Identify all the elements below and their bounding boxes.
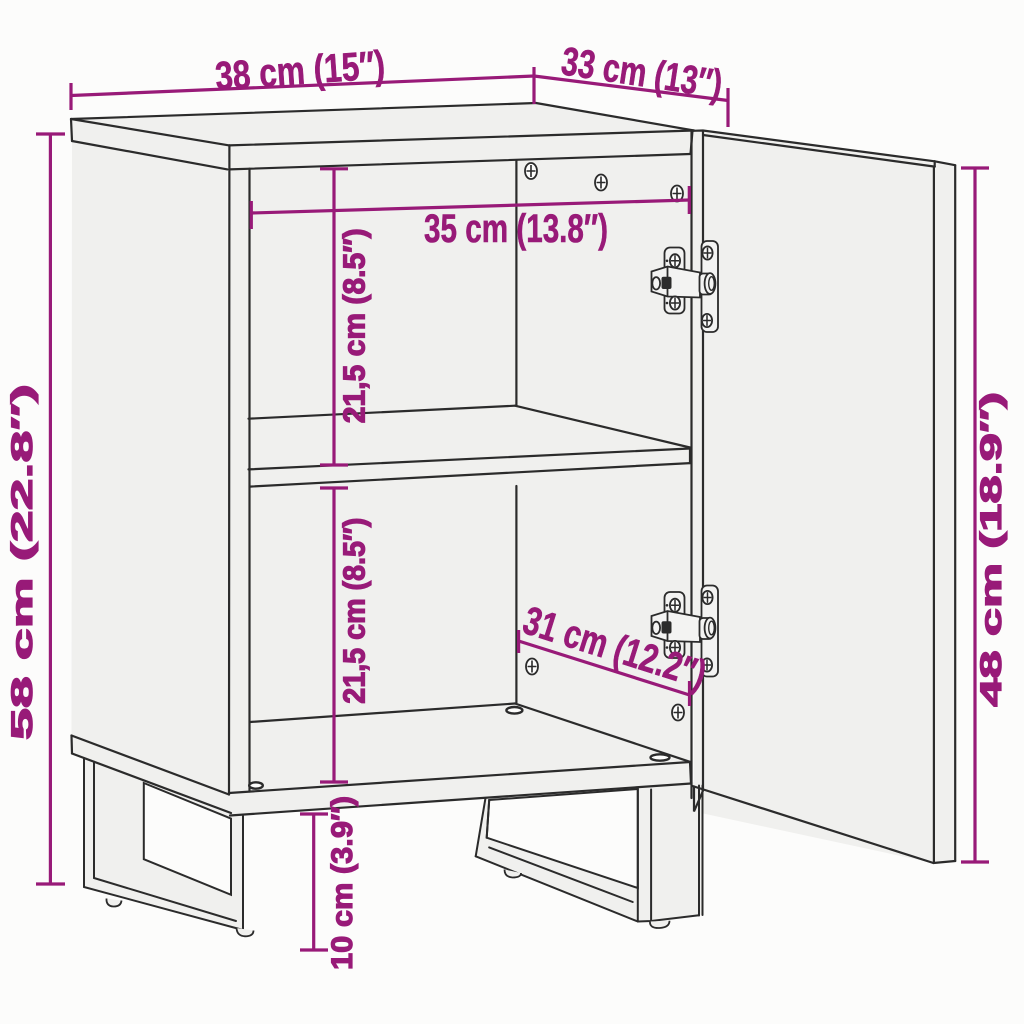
svg-text:48 cm (18.9″): 48 cm (18.9″) — [975, 392, 1008, 707]
svg-text:21,5 cm (8.5″): 21,5 cm (8.5″) — [337, 518, 372, 704]
svg-text:10 cm (3.9″): 10 cm (3.9″) — [326, 796, 359, 970]
svg-text:21,5 cm (8.5″): 21,5 cm (8.5″) — [337, 228, 372, 423]
svg-text:58 cm (22.8″): 58 cm (22.8″) — [6, 384, 39, 740]
svg-text:35 cm (13.8″): 35 cm (13.8″) — [424, 207, 608, 251]
